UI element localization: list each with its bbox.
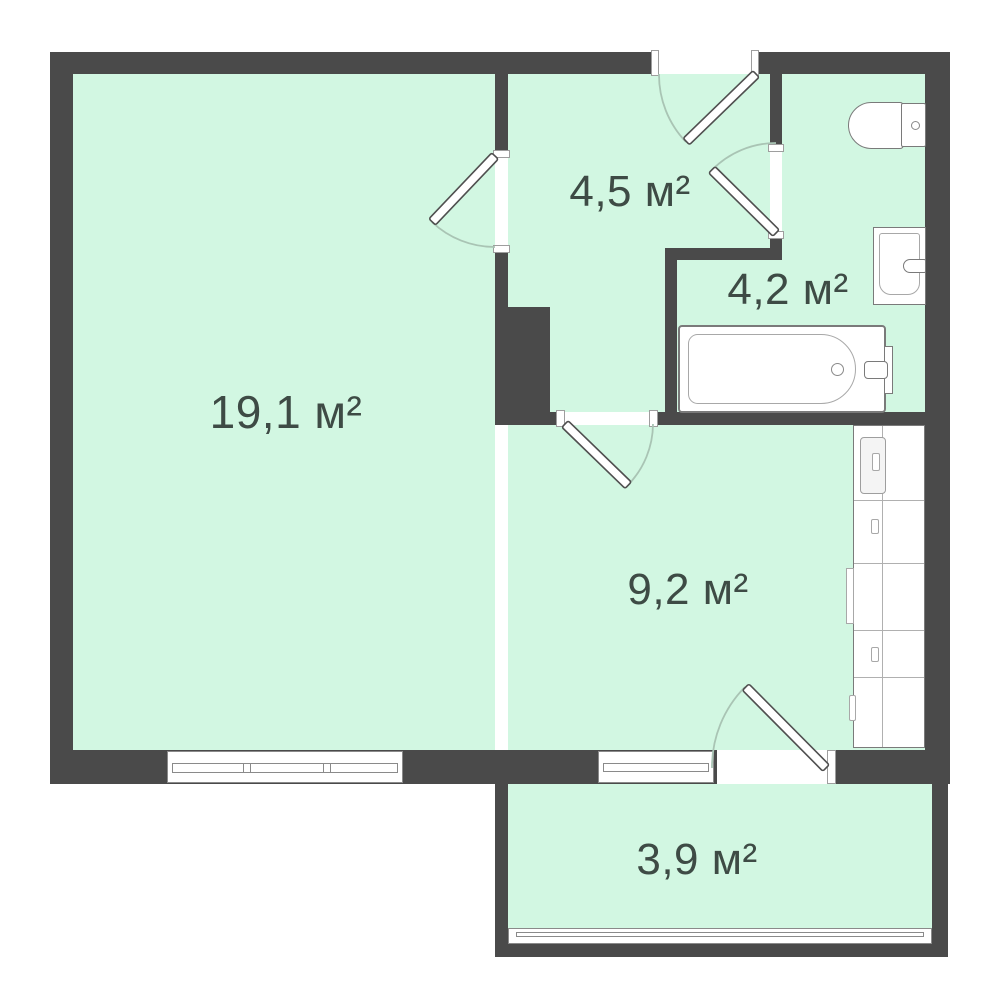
door-jamb bbox=[649, 410, 658, 427]
wall-balcony-left bbox=[495, 784, 508, 957]
toilet-flush-button bbox=[911, 121, 920, 130]
living-room-window bbox=[167, 751, 403, 783]
cabinet-handle bbox=[872, 453, 880, 471]
door-jamb bbox=[651, 50, 659, 76]
wall-hallway-bathroom bbox=[770, 73, 782, 144]
hallway-area-label: 4,5 м² bbox=[569, 167, 690, 217]
counter-divider bbox=[854, 677, 924, 678]
wall-bathroom-west bbox=[665, 248, 677, 412]
balcony-area-label: 3,9 м² bbox=[636, 835, 757, 885]
window-mullion bbox=[323, 764, 331, 772]
stove-handle bbox=[849, 695, 856, 721]
door-jamb bbox=[751, 50, 759, 76]
bathroom-door-opening bbox=[770, 144, 782, 239]
wall-balcony-bottom bbox=[495, 943, 948, 957]
toilet bbox=[848, 102, 904, 149]
door-jamb bbox=[827, 750, 836, 784]
door-jamb bbox=[493, 150, 510, 158]
wall-top-left bbox=[50, 52, 652, 74]
window-glazing bbox=[172, 763, 398, 773]
counter-divider bbox=[854, 630, 924, 631]
living-room-door-opening bbox=[495, 150, 508, 253]
wall-balcony-right bbox=[932, 784, 948, 947]
balcony-glazing bbox=[508, 928, 932, 944]
wall-top-right bbox=[759, 52, 950, 74]
glazing-line bbox=[516, 932, 924, 937]
door-jamb bbox=[556, 410, 565, 427]
door-jamb bbox=[768, 144, 784, 152]
kitchen-door-opening bbox=[557, 412, 658, 425]
door-jamb bbox=[768, 231, 784, 239]
window-mullion bbox=[243, 764, 251, 772]
hallway-floor bbox=[508, 248, 665, 307]
balcony-door-opening bbox=[717, 750, 828, 784]
wall-bathroom-south-step bbox=[665, 248, 782, 260]
living-room-area-label: 19,1 м² bbox=[210, 385, 363, 439]
bathroom-area-label: 4,2 м² bbox=[727, 265, 848, 315]
counter-ledge bbox=[846, 568, 854, 624]
door-jamb bbox=[493, 245, 510, 253]
window-glazing bbox=[603, 763, 709, 772]
cabinet-handle bbox=[871, 647, 879, 662]
kitchen-window bbox=[598, 751, 714, 783]
kitchen-area-label: 9,2 м² bbox=[627, 565, 748, 615]
floor-plan: 19,1 м² 4,5 м² 4,2 м² 9,2 м² 3,9 м² bbox=[0, 0, 1000, 1000]
hallway-floor bbox=[508, 74, 770, 248]
wall-living-hallway bbox=[495, 73, 508, 150]
wall-living-kitchen-pier bbox=[495, 307, 550, 425]
counter-divider bbox=[854, 563, 924, 564]
cabinet-handle bbox=[871, 519, 879, 534]
bathtub-drain bbox=[831, 363, 844, 376]
hallway-floor bbox=[550, 307, 665, 412]
wall-living-hallway bbox=[495, 253, 508, 307]
entrance-opening bbox=[652, 52, 759, 74]
sink-faucet bbox=[903, 259, 926, 273]
wall-left bbox=[50, 52, 73, 784]
counter-divider bbox=[854, 500, 924, 501]
bathtub-faucet bbox=[864, 361, 888, 379]
